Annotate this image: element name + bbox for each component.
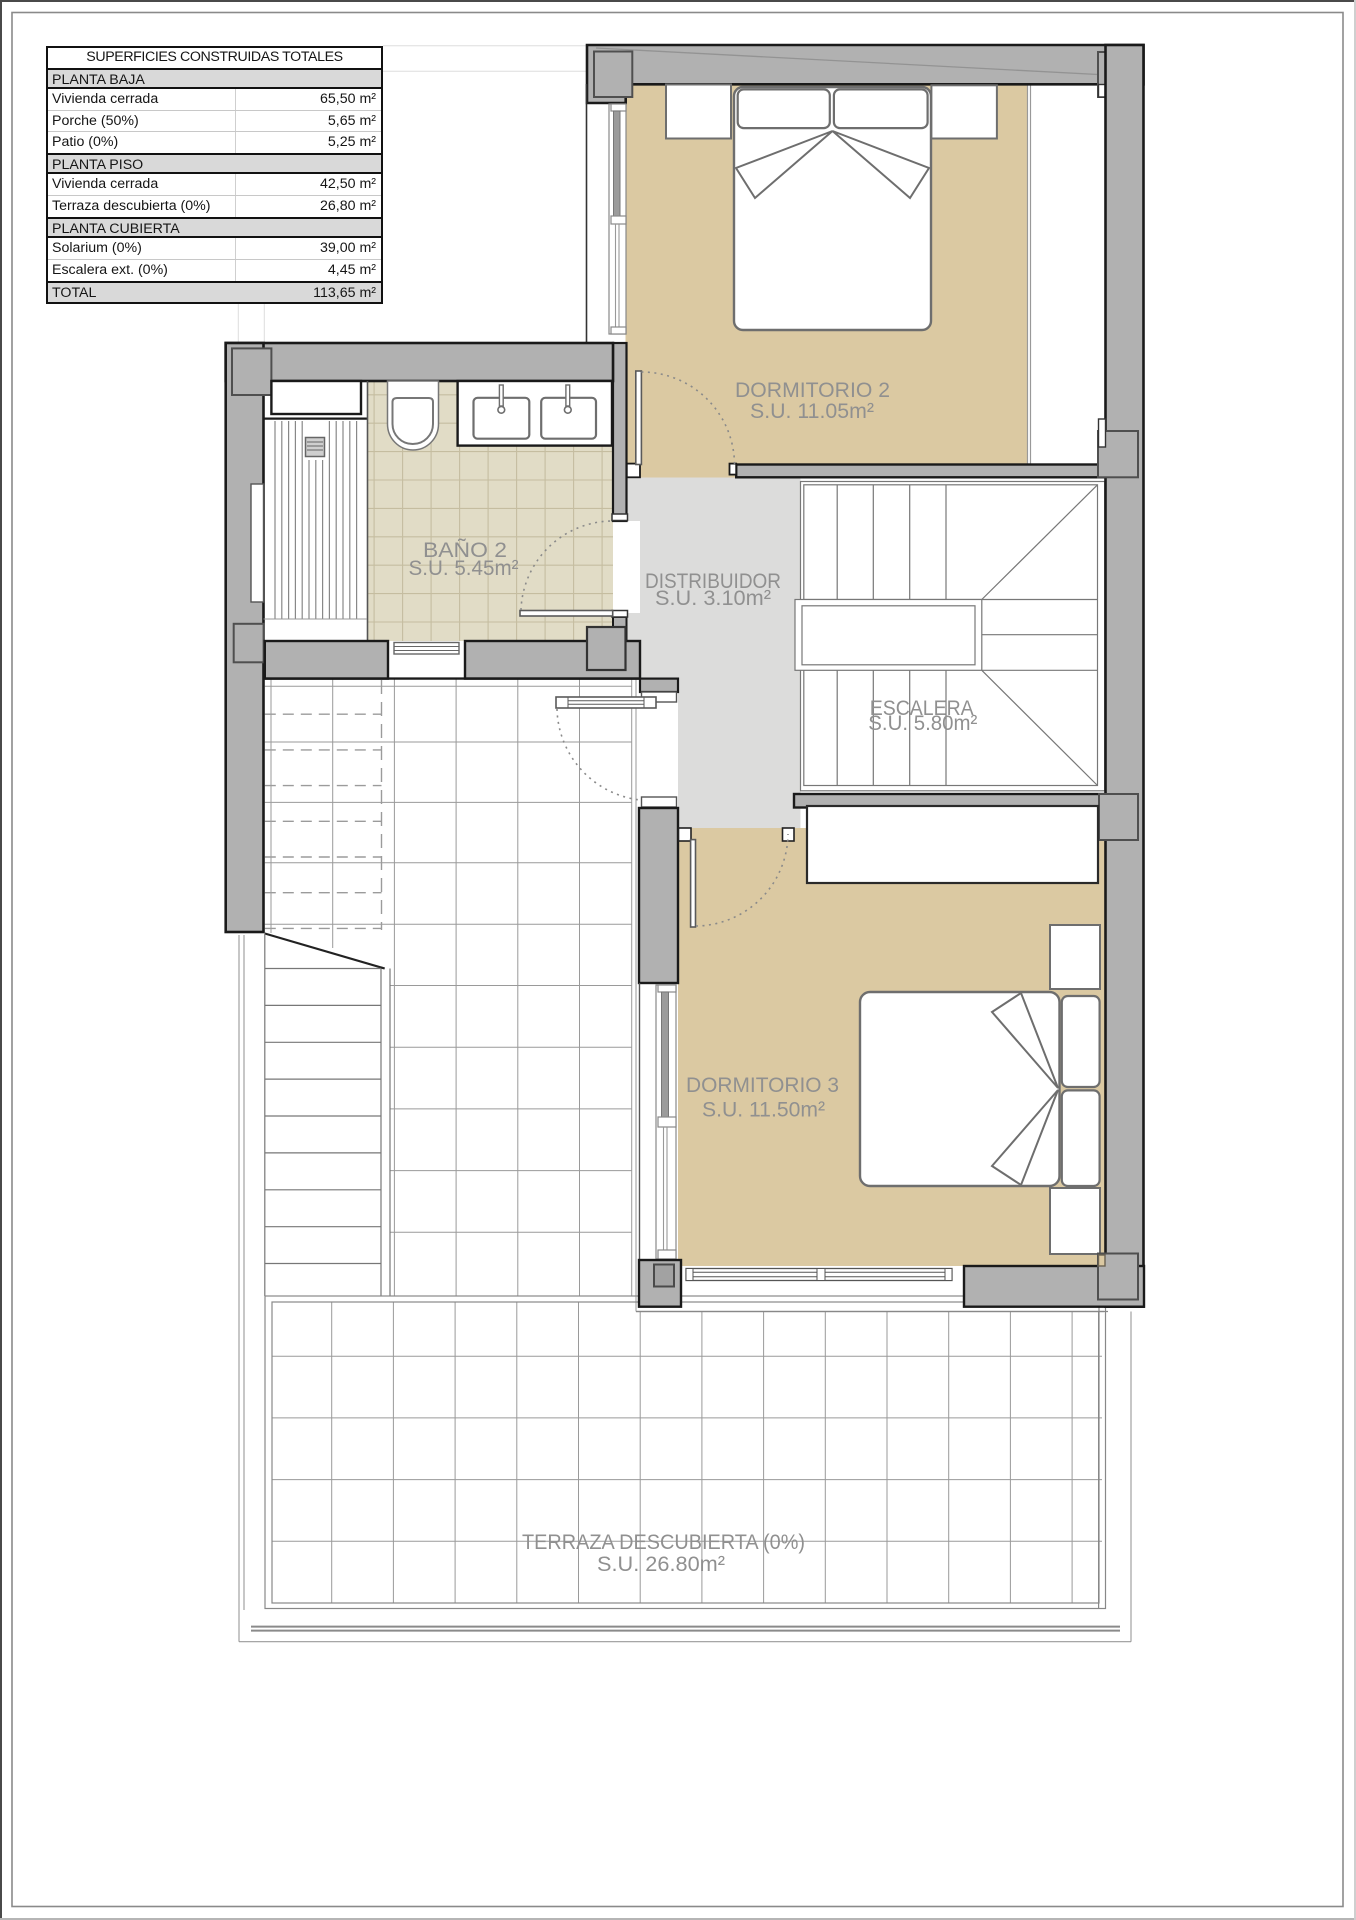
svg-text:S.U. 5.80m²: S.U. 5.80m²	[868, 711, 977, 735]
svg-text:TERRAZA DESCUBIERTA (0%): TERRAZA DESCUBIERTA (0%)	[522, 1530, 805, 1554]
svg-text:S.U. 11.50m²: S.U. 11.50m²	[702, 1098, 825, 1122]
svg-text:S.U. 26.80m²: S.U. 26.80m²	[597, 1552, 725, 1576]
svg-text:S.U. 11.05m²: S.U. 11.05m²	[750, 399, 874, 423]
svg-text:S.U. 5.45m²: S.U. 5.45m²	[409, 556, 519, 580]
svg-text:S.U. 3.10m²: S.U. 3.10m²	[655, 586, 771, 610]
svg-text:DORMITORIO 3: DORMITORIO 3	[686, 1073, 839, 1097]
